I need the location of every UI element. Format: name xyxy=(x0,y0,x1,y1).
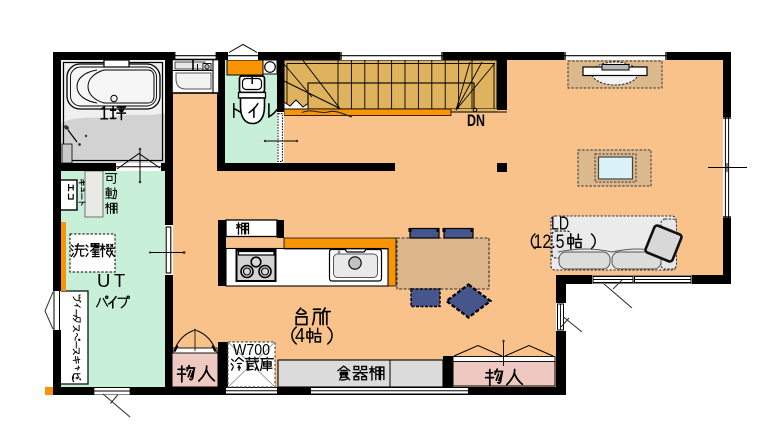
svg-text:4: 4 xyxy=(295,325,305,347)
svg-text:UT: UT xyxy=(97,270,129,291)
svg-text:DN: DN xyxy=(467,112,485,130)
svg-text:1: 1 xyxy=(99,104,109,124)
svg-text:W700: W700 xyxy=(233,342,270,359)
svg-text:12.5: 12.5 xyxy=(534,232,565,253)
svg-text:LD: LD xyxy=(551,214,569,234)
